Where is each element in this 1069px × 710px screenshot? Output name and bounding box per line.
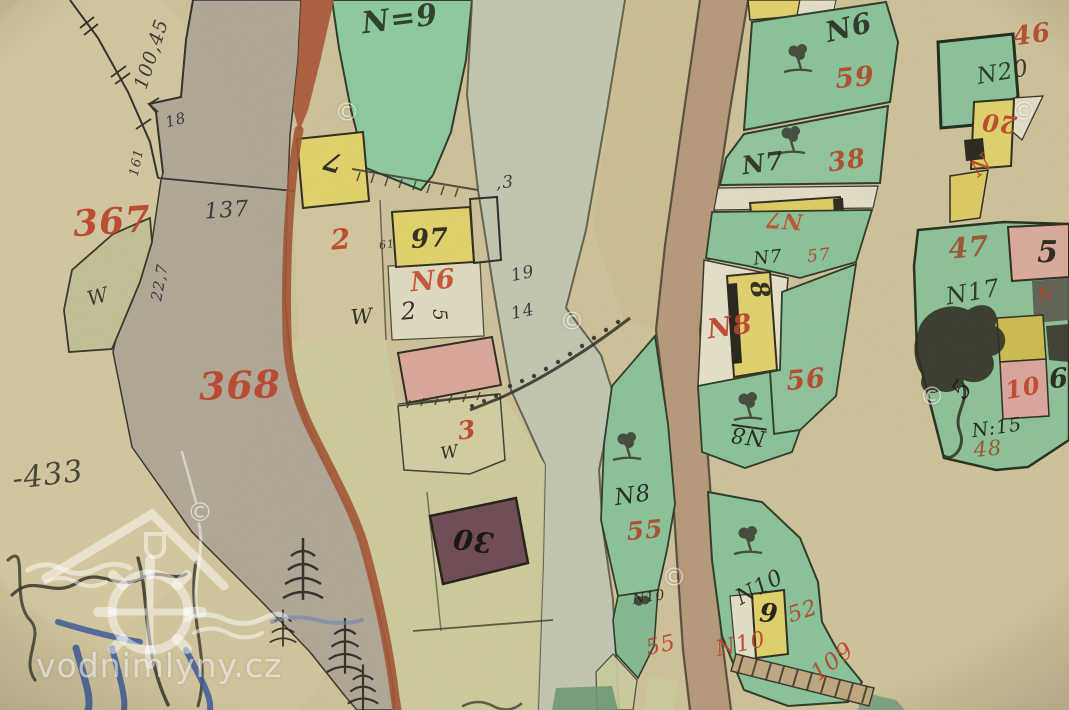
historical-cadastral-map: © 100,4518161137367W22,7368-433N=97297N6… (0, 0, 1069, 710)
svg-text:©: © (187, 498, 213, 528)
map-artwork: © (0, 0, 1069, 710)
